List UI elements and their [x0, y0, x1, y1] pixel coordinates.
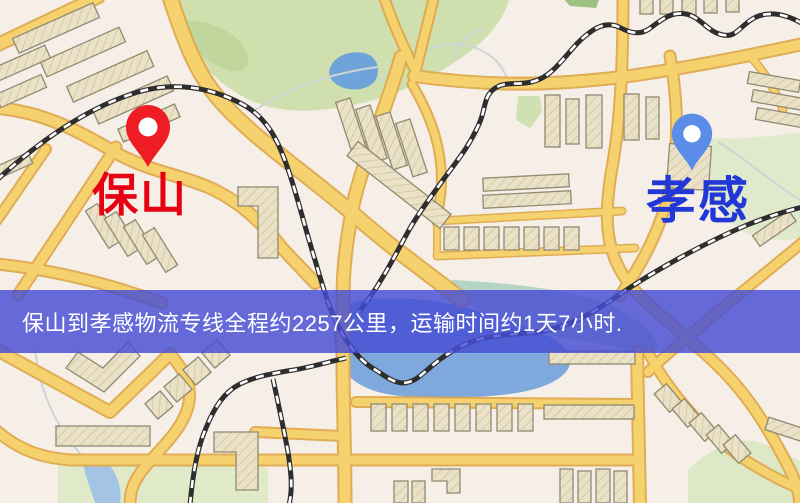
- blue-map-pin-icon: [670, 111, 714, 173]
- route-info-banner: 保山到孝感物流专线全程约2257公里，运输时间约1天7小时.: [0, 290, 800, 353]
- origin-label: 保山: [92, 172, 188, 218]
- route-info-text: 保山到孝感物流专线全程约2257公里，运输时间约1天7小时.: [0, 306, 623, 338]
- map-screenshot: 保山到孝感物流专线全程约2257公里，运输时间约1天7小时. 保山 孝感: [0, 0, 800, 503]
- origin-marker[interactable]: [124, 103, 172, 174]
- destination-label: 孝感: [646, 176, 750, 226]
- red-map-pin-icon: [124, 103, 172, 169]
- map-canvas[interactable]: [0, 0, 800, 503]
- destination-marker[interactable]: [670, 111, 714, 178]
